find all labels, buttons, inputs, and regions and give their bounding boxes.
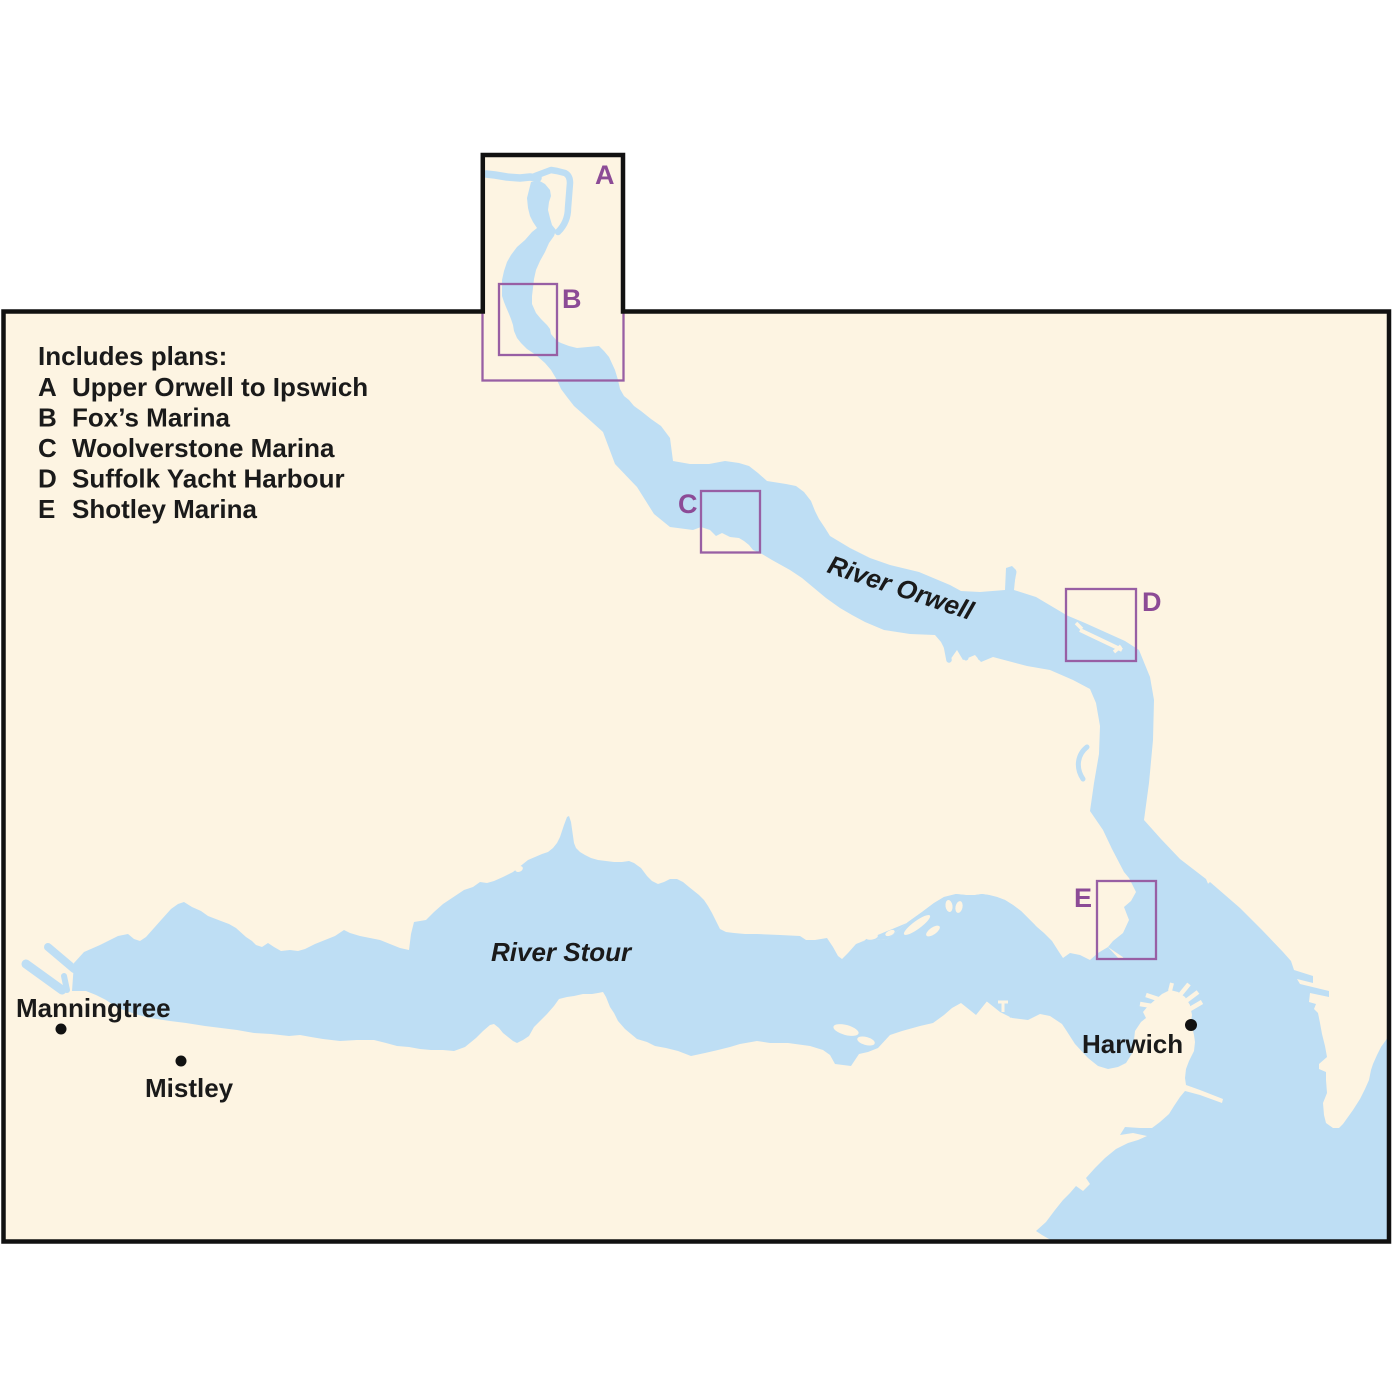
svg-text:Upper Orwell to Ipswich: Upper Orwell to Ipswich [72, 372, 368, 402]
svg-text:River Stour: River Stour [491, 937, 633, 967]
svg-text:A: A [595, 160, 615, 190]
svg-text:Harwich: Harwich [1082, 1029, 1183, 1059]
svg-text:Includes plans:: Includes plans: [38, 341, 227, 371]
svg-text:D: D [38, 464, 57, 494]
svg-text:Shotley Marina: Shotley Marina [72, 494, 257, 524]
svg-text:E: E [38, 494, 55, 524]
svg-text:B: B [562, 284, 582, 314]
svg-text:Suffolk Yacht Harbour: Suffolk Yacht Harbour [72, 464, 345, 494]
svg-text:E: E [1074, 883, 1092, 913]
svg-text:C: C [678, 489, 698, 519]
svg-text:B: B [38, 403, 57, 433]
svg-text:D: D [1142, 587, 1162, 617]
svg-text:Mistley: Mistley [145, 1073, 234, 1103]
svg-text:A: A [38, 372, 57, 402]
svg-text:Woolverstone Marina: Woolverstone Marina [72, 433, 335, 463]
svg-text:Manningtree: Manningtree [16, 993, 171, 1023]
svg-text:C: C [38, 433, 57, 463]
svg-text:Fox’s Marina: Fox’s Marina [72, 403, 231, 433]
